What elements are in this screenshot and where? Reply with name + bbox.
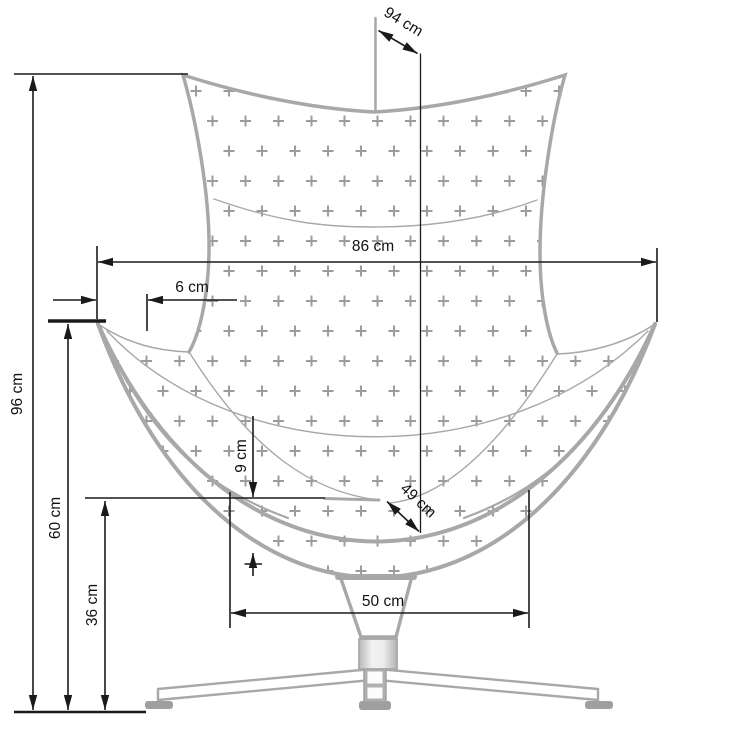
dimension-label-60: 60 cm: [47, 497, 64, 539]
dimension-label-96: 96 cm: [9, 373, 26, 415]
column-window-top: [368, 672, 383, 684]
foot-left: [145, 701, 173, 709]
dimension-label-50: 50 cm: [362, 593, 404, 610]
dimension-label-6: 6 cm: [175, 279, 209, 296]
column-window-bottom: [368, 688, 383, 699]
dimension-36: 36 cm: [84, 501, 105, 710]
dimension-label-36: 36 cm: [84, 584, 101, 626]
foot-right: [585, 701, 613, 709]
upholstery-plus-pattern: [80, 60, 680, 590]
gas-cylinder: [359, 639, 397, 669]
seat-surface-line: [325, 499, 379, 501]
dimension-60: 60 cm: [47, 324, 68, 710]
leg-right: [378, 669, 598, 700]
leg-left: [158, 669, 372, 700]
dimension-label-86: 86 cm: [352, 238, 394, 255]
chair-dimension-diagram: 96 cm 60 cm 36 cm 86 cm 6 cm: [0, 0, 744, 736]
dimension-label-9: 9 cm: [233, 439, 250, 473]
diagram-canvas: 96 cm 60 cm 36 cm 86 cm 6 cm: [0, 0, 744, 736]
dimension-label-94: 94 cm: [381, 4, 426, 40]
dimension-96: 96 cm: [9, 76, 33, 710]
